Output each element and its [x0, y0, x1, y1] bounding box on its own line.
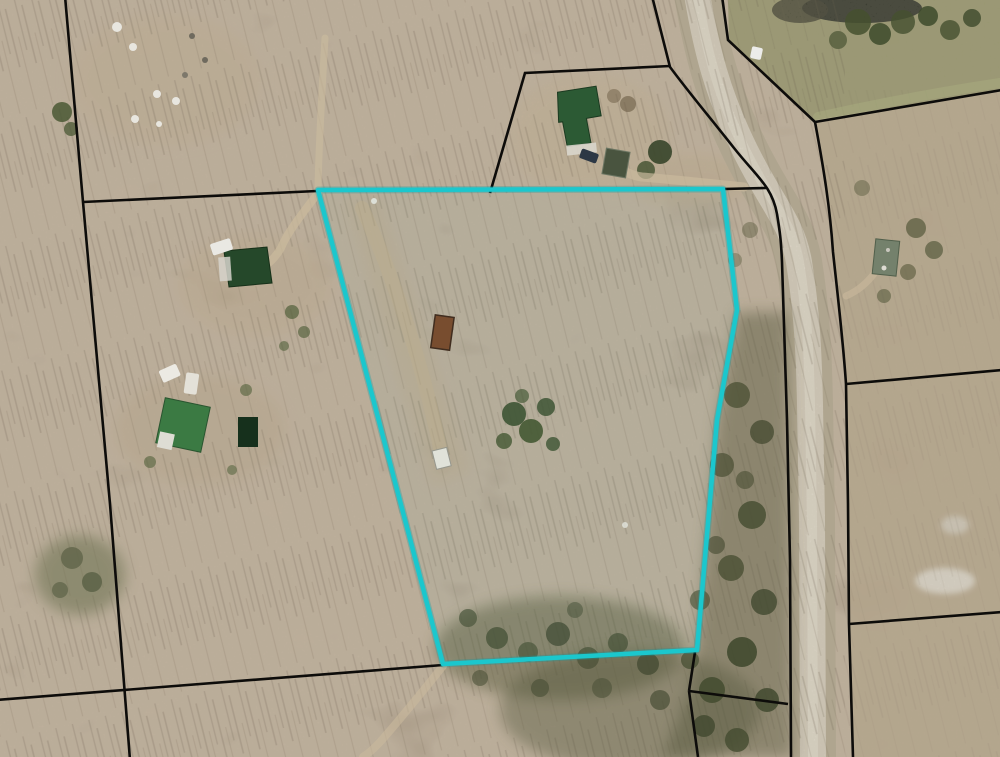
tree: [725, 728, 749, 752]
north-house-shed: [602, 148, 630, 178]
bush: [227, 465, 237, 475]
tree: [877, 289, 891, 303]
left-cedar-clump: [35, 535, 125, 615]
junk-speck-dark: [182, 72, 188, 78]
junk-speck: [156, 121, 162, 127]
bush: [279, 341, 289, 351]
cedar-tree: [52, 102, 72, 122]
tree: [750, 420, 774, 444]
tree: [61, 547, 83, 569]
brush: [742, 222, 758, 238]
tree: [736, 471, 754, 489]
tree: [472, 670, 488, 686]
junk-speck: [153, 90, 161, 98]
tree: [592, 678, 612, 698]
junk-speck: [112, 22, 122, 32]
map-canvas: [0, 0, 1000, 757]
junk-speck: [131, 115, 139, 123]
junk-speck-dark: [189, 33, 195, 39]
tree: [648, 140, 672, 164]
tree: [718, 555, 744, 581]
tree: [906, 218, 926, 238]
junk-speck: [172, 97, 180, 105]
tree: [751, 589, 777, 615]
west-house-green-roof: [224, 247, 272, 287]
bare-tree: [620, 96, 636, 112]
bush: [144, 456, 156, 468]
tree: [925, 241, 943, 259]
tree: [699, 677, 725, 703]
tree: [829, 31, 847, 49]
tree: [900, 264, 916, 280]
dark-green-tarp: [238, 417, 258, 447]
bush: [240, 384, 252, 396]
tree: [724, 382, 750, 408]
bush: [285, 305, 299, 319]
tree: [845, 9, 871, 35]
aerial-parcel-map[interactable]: [0, 0, 1000, 757]
east-cabin: [872, 239, 900, 276]
tree: [891, 10, 915, 34]
bare-tree: [607, 89, 621, 103]
east-cabin-detail: [886, 248, 890, 252]
tree: [854, 180, 870, 196]
boundary-parcel-road-connector: [723, 188, 766, 189]
tree: [918, 6, 938, 26]
tree: [650, 690, 670, 710]
junk-speck-dark: [202, 57, 208, 63]
tree: [531, 679, 549, 697]
west-house-white-trim: [218, 257, 232, 282]
east-cabin-detail: [882, 266, 887, 271]
tree: [963, 9, 981, 27]
tree: [693, 715, 715, 737]
tree: [52, 582, 68, 598]
junk-speck: [129, 43, 137, 51]
tree: [869, 23, 891, 45]
tree: [940, 20, 960, 40]
tree: [727, 637, 757, 667]
tree: [82, 572, 102, 592]
tree: [738, 501, 766, 529]
bush: [298, 326, 310, 338]
